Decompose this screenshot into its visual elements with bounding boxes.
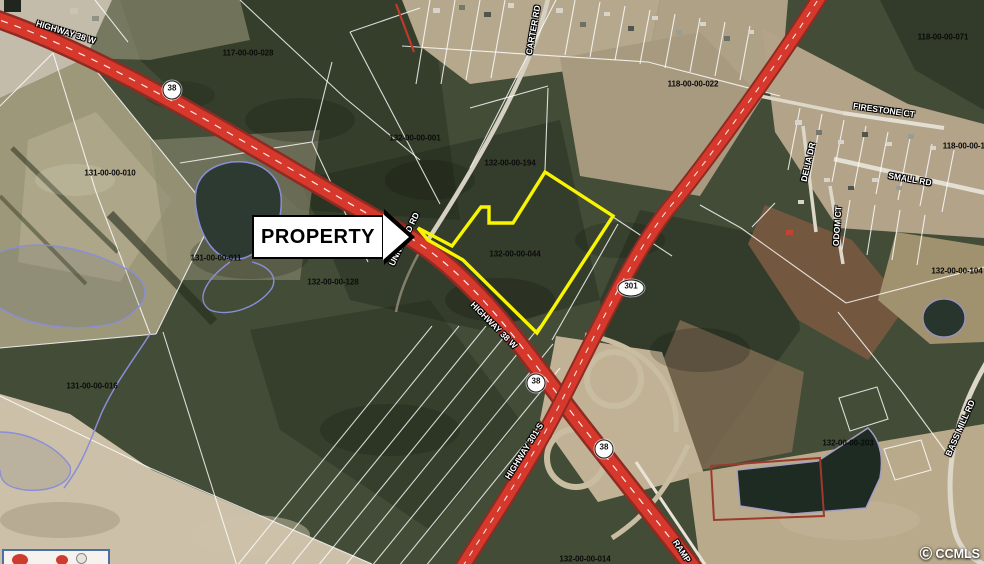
- logo-red-shape: [12, 554, 28, 564]
- logo-gray-shape: [76, 553, 87, 564]
- property-arrow: PROPERTY: [252, 215, 384, 259]
- ccmls-watermark: Ⓒ CCMLS: [920, 543, 980, 562]
- logo-red-shape: [56, 555, 68, 564]
- aerial-parcel-map: 117-00-00-028132-00-00-001132-00-00-1941…: [0, 0, 984, 564]
- mls-logo: [2, 549, 110, 564]
- property-arrow-label: PROPERTY: [261, 226, 375, 249]
- pond-east: [923, 299, 965, 337]
- map-artwork: [0, 0, 984, 564]
